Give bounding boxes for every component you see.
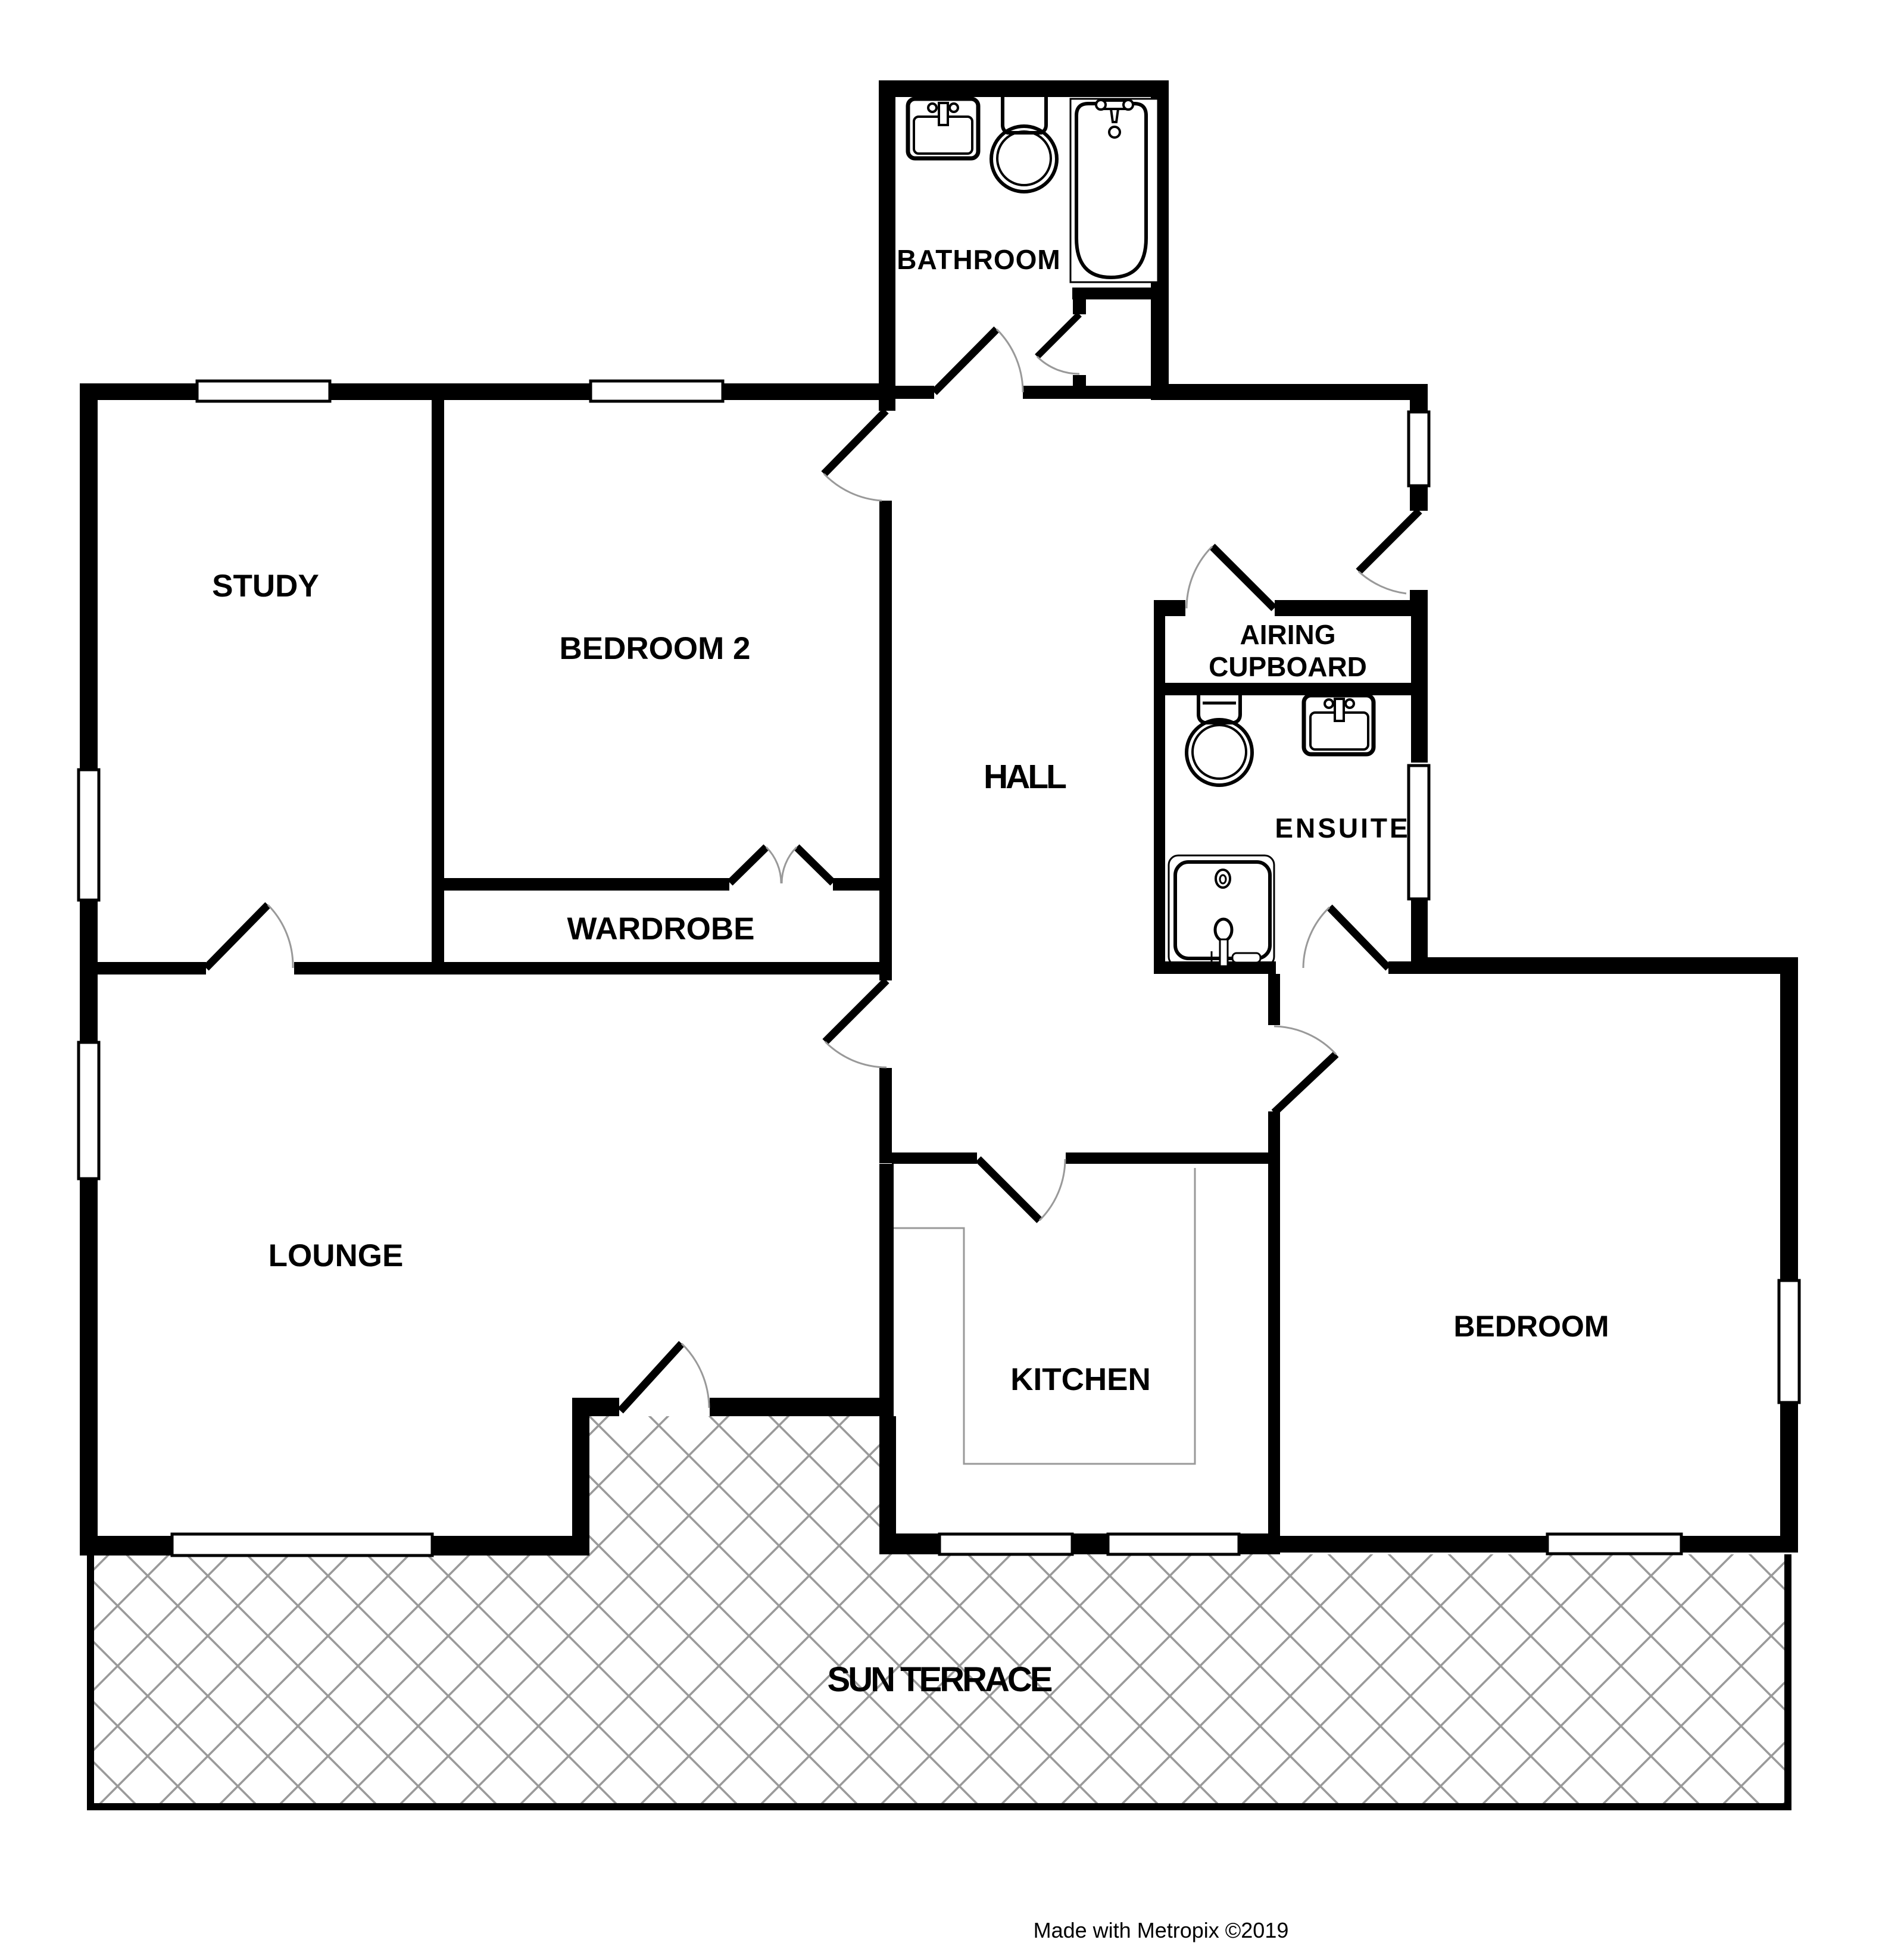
- svg-text:CUPBOARD: CUPBOARD: [1209, 651, 1367, 682]
- svg-text:AIRING: AIRING: [1240, 619, 1336, 650]
- svg-text:BEDROOM: BEDROOM: [1453, 1310, 1609, 1343]
- svg-text:BATHROOM: BATHROOM: [897, 244, 1060, 275]
- svg-text:Made with Metropix ©2019: Made with Metropix ©2019: [1034, 1918, 1289, 1942]
- svg-text:HALL: HALL: [984, 758, 1066, 796]
- svg-text:STUDY: STUDY: [212, 569, 319, 604]
- svg-text:ENSUITE: ENSUITE: [1275, 813, 1410, 844]
- svg-text:KITCHEN: KITCHEN: [1010, 1362, 1151, 1397]
- svg-text:BEDROOM 2: BEDROOM 2: [560, 631, 751, 666]
- svg-text:WARDROBE: WARDROBE: [567, 911, 754, 947]
- svg-text:LOUNGE: LOUNGE: [269, 1238, 404, 1273]
- svg-text:SUN TERRACE: SUN TERRACE: [828, 1660, 1052, 1699]
